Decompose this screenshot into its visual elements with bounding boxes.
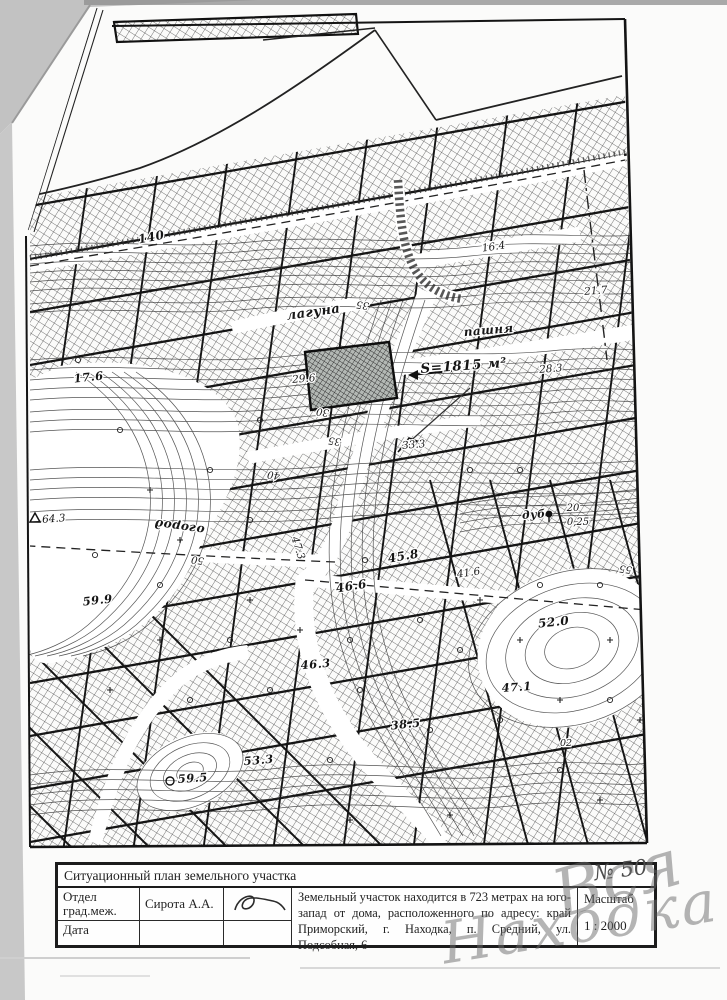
scan-streak: [60, 975, 150, 977]
dept-label: Отдел град.меж.: [58, 888, 139, 921]
map-label: 53.3: [243, 752, 274, 769]
map-label: 20: [566, 503, 580, 514]
map-label: 30: [315, 405, 330, 418]
signature: [224, 888, 291, 921]
map-label: 64.3: [42, 512, 66, 526]
scanned-page: 14016.421.7лагунапашня3528.3S=1815 м²29.…: [0, 0, 727, 1000]
date-label: Дата: [58, 921, 139, 945]
situational-map: 14016.421.7лагунапашня3528.3S=1815 м²29.…: [0, 0, 727, 1000]
scan-streak: [0, 957, 250, 959]
map-label: 40: [266, 468, 282, 481]
oak-tree-icon: [546, 511, 553, 518]
scale-cell: Масштаб 1 : 2000: [578, 888, 654, 933]
map-label: 29.6: [291, 372, 316, 386]
map-label: 50: [190, 553, 205, 566]
map-label: 46.3: [300, 656, 331, 673]
dept-value: Сирота А.А.: [140, 888, 223, 921]
date-value-empty: [140, 921, 223, 945]
map-label: 28.3: [538, 362, 563, 376]
scan-streak: [300, 967, 720, 969]
signature-empty: [224, 921, 291, 945]
map-label: 33.3: [402, 438, 427, 452]
map-label: 55: [619, 562, 633, 575]
map-label: 0,25: [567, 517, 589, 528]
map-label: 35: [356, 298, 370, 311]
map-label: 02: [560, 738, 572, 749]
map-label: 47.1: [501, 679, 532, 695]
signature-scribble: [229, 890, 287, 916]
title-block-title: Ситуационный план земельного участка: [58, 865, 654, 888]
scale-value: 1 : 2000: [584, 919, 650, 933]
map-label: 59.5: [177, 770, 208, 786]
plot-description: Земельный участок находится в 723 метрах…: [292, 888, 577, 956]
map-label: дуб: [521, 507, 546, 522]
title-block: Ситуационный план земельного участка Отд…: [55, 862, 657, 948]
map-label: 35: [328, 434, 342, 447]
scale-label: Масштаб: [584, 893, 650, 907]
map-label: 21.7: [583, 284, 608, 298]
